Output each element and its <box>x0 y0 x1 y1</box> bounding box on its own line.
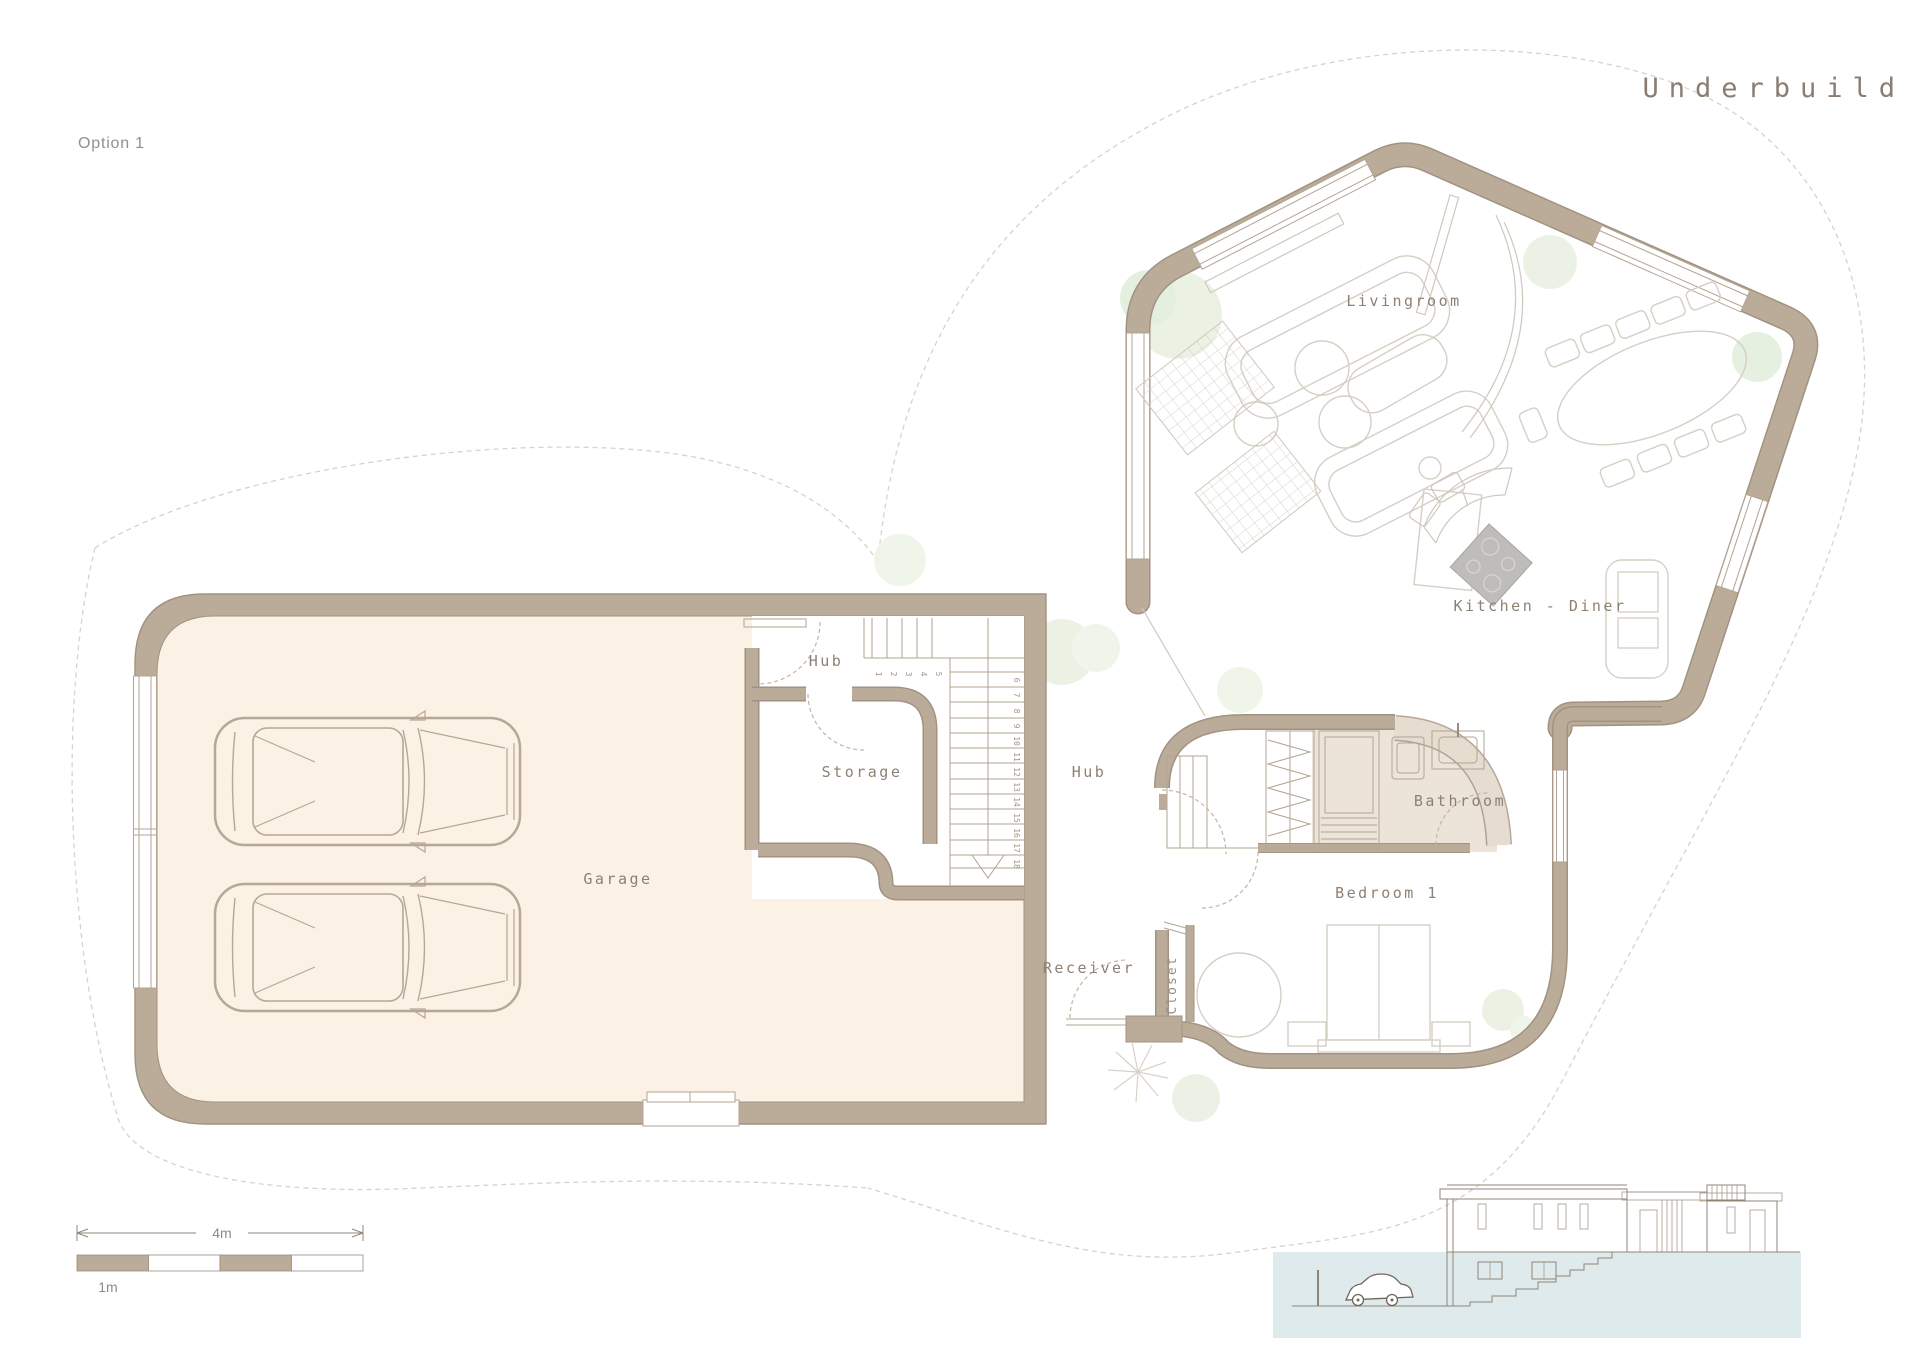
living-window <box>1716 494 1768 592</box>
floor-plan-canvas: 1 2 3 4 5 6 7 8 9 10 11 12 13 14 15 16 1… <box>0 0 1920 1357</box>
side-table <box>1419 457 1441 479</box>
stair-number: 3 <box>904 672 913 677</box>
scale-unit-label: 1m <box>98 1279 117 1295</box>
round-rug <box>1197 953 1281 1037</box>
kitchen-island <box>1408 468 1532 606</box>
stair-number: 5 <box>934 672 943 677</box>
page-title: Underbuild <box>1642 73 1905 104</box>
living-window <box>1127 333 1150 559</box>
kitchen-counter <box>1606 560 1668 678</box>
garage-door <box>643 1092 739 1126</box>
label-storage: Storage <box>822 763 903 781</box>
bedroom-wing: Closet <box>1043 714 1662 1102</box>
stair-number: 18 <box>1012 859 1021 869</box>
dresser-tab <box>1159 794 1167 810</box>
stair-number: 13 <box>1012 782 1021 792</box>
entry-wall <box>1126 1016 1182 1042</box>
stair-number: 7 <box>1012 693 1021 698</box>
stair-number: 16 <box>1012 828 1021 838</box>
stair-number: 10 <box>1012 736 1021 746</box>
label-hub-upper: Hub <box>809 652 844 670</box>
palm-icon <box>1108 1042 1168 1102</box>
living-wing: Livingroom Kitchen - Diner <box>1127 155 1806 728</box>
label-bathroom: Bathroom <box>1414 792 1506 810</box>
wardrobe <box>1266 731 1314 848</box>
garage-window <box>134 676 157 988</box>
stair-number: 11 <box>1012 752 1021 762</box>
door-swing <box>1202 852 1258 908</box>
curved-screen <box>1470 222 1523 438</box>
label-kitchen-diner: Kitchen - Diner <box>1454 597 1627 615</box>
bedroom-window <box>1553 770 1567 862</box>
label-closet: Closet <box>1165 956 1180 1015</box>
chair <box>1544 338 1581 369</box>
ottoman <box>1319 396 1371 448</box>
chair <box>1579 324 1616 355</box>
curved-screen <box>1462 215 1516 432</box>
chair <box>1673 428 1710 459</box>
garage-region: 1 2 3 4 5 6 7 8 9 10 11 12 13 14 15 16 1… <box>134 594 1047 1126</box>
stair-number: 9 <box>1012 724 1021 729</box>
chair <box>1636 443 1673 474</box>
stair-number: 1 <box>874 672 883 677</box>
stair-number: 8 <box>1012 709 1021 714</box>
stair-number: 17 <box>1012 843 1021 853</box>
scale-bar: 4m 1m <box>77 1225 363 1295</box>
stair-number: 6 <box>1012 678 1021 683</box>
tree-icon <box>1217 667 1263 713</box>
tree-icon <box>1172 1074 1220 1122</box>
tree-icon <box>1072 624 1120 672</box>
stair-number: 15 <box>1012 813 1021 823</box>
door-swing <box>1162 790 1226 854</box>
dining-table <box>1499 280 1773 509</box>
stair-number: 12 <box>1012 767 1021 777</box>
chair <box>1599 458 1636 489</box>
tree-icon <box>1523 235 1577 289</box>
stair-number: 4 <box>919 672 928 677</box>
scale-total-label: 4m <box>212 1225 231 1241</box>
sofa-2 <box>1305 381 1517 545</box>
living-window <box>1192 159 1376 269</box>
chair <box>1518 407 1549 444</box>
rug-2 <box>1195 431 1321 552</box>
label-garage: Garage <box>583 870 652 888</box>
label-hub-lower: Hub <box>1072 763 1107 781</box>
stair-number: 14 <box>1012 797 1021 807</box>
chair <box>1710 413 1747 444</box>
elevation-drawing <box>1273 1185 1801 1338</box>
nightstand <box>1432 1022 1470 1046</box>
floor-edge <box>1142 608 1205 716</box>
tree-icon <box>874 534 926 586</box>
cooktop <box>1450 524 1532 606</box>
stair-number: 2 <box>889 672 898 677</box>
floor-plan-sheet: 1 2 3 4 5 6 7 8 9 10 11 12 13 14 15 16 1… <box>0 0 1920 1357</box>
tree-icon <box>1732 332 1782 382</box>
chair <box>1614 309 1651 340</box>
bed <box>1288 925 1470 1052</box>
ottoman <box>1295 341 1349 395</box>
label-livingroom: Livingroom <box>1346 292 1461 310</box>
label-bedroom1: Bedroom 1 <box>1335 884 1439 902</box>
label-receiver: Receiver <box>1043 959 1135 977</box>
chair <box>1649 295 1686 326</box>
nightstand <box>1288 1022 1326 1046</box>
option-label: Option 1 <box>78 135 145 152</box>
